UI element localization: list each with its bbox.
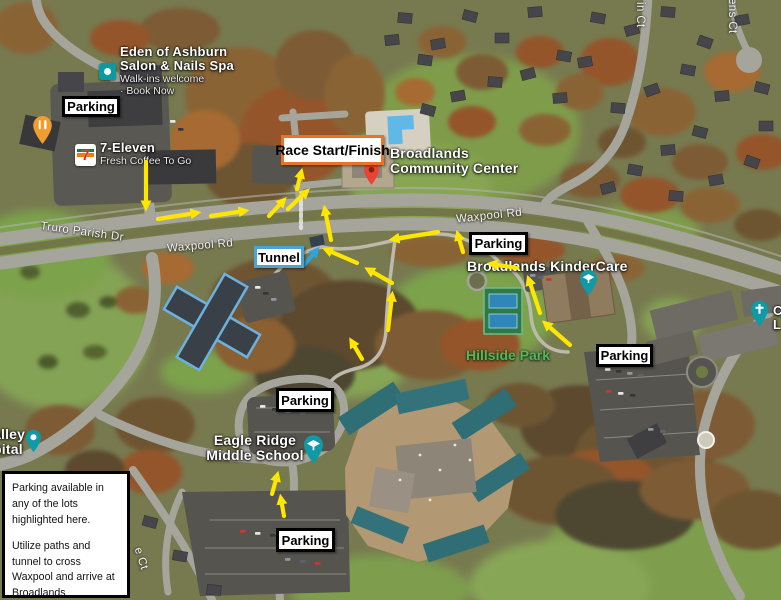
annotated-race-map: Eden of Ashburn Salon & Nails Spa Walk-i… [0,0,781,600]
satellite-map [0,0,781,600]
